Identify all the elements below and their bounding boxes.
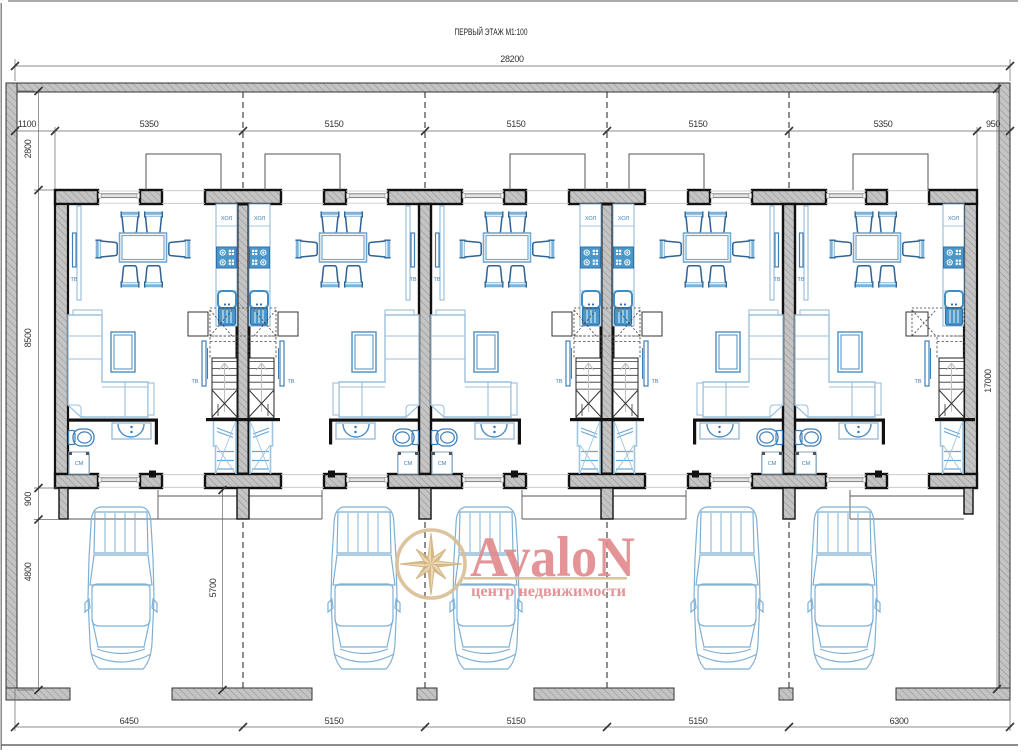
svg-text:ТВ: ТВ — [70, 277, 77, 283]
svg-text:900: 900 — [23, 492, 33, 506]
svg-text:ХОЛ: ХОЛ — [948, 216, 960, 222]
svg-text:ХОЛ: ХОЛ — [221, 216, 233, 222]
svg-text:СМ: СМ — [75, 461, 84, 467]
svg-text:950: 950 — [986, 119, 1000, 129]
svg-text:6300: 6300 — [890, 716, 909, 726]
svg-text:ПЕРВЫЙ ЭТАЖ М1:100: ПЕРВЫЙ ЭТАЖ М1:100 — [455, 26, 528, 38]
svg-text:6450: 6450 — [120, 716, 139, 726]
svg-text:5350: 5350 — [140, 119, 159, 129]
svg-text:8500: 8500 — [23, 328, 33, 347]
svg-text:ХОЛ: ХОЛ — [585, 216, 597, 222]
svg-text:ТВ: ТВ — [773, 277, 780, 283]
svg-text:ТВ: ТВ — [914, 379, 921, 385]
svg-text:5150: 5150 — [325, 716, 344, 726]
svg-text:28200: 28200 — [500, 54, 524, 64]
svg-text:СМ: СМ — [438, 461, 447, 467]
svg-text:5700: 5700 — [208, 578, 218, 597]
svg-text:ТВ: ТВ — [555, 379, 562, 385]
svg-text:5150: 5150 — [507, 119, 526, 129]
svg-text:СМ: СМ — [802, 461, 811, 467]
svg-text:4800: 4800 — [23, 562, 33, 581]
svg-text:1100: 1100 — [18, 119, 36, 129]
svg-text:ТВ: ТВ — [191, 379, 198, 385]
svg-text:5150: 5150 — [507, 716, 526, 726]
svg-text:ТВ: ТВ — [287, 379, 294, 385]
svg-text:2800: 2800 — [23, 139, 33, 158]
svg-text:СМ: СМ — [404, 461, 413, 467]
svg-text:5150: 5150 — [689, 119, 708, 129]
svg-text:5150: 5150 — [689, 716, 708, 726]
svg-text:ХОЛ: ХОЛ — [254, 216, 266, 222]
svg-text:ХОЛ: ХОЛ — [618, 216, 630, 222]
svg-text:СМ: СМ — [768, 461, 777, 467]
svg-text:центр недвижимости: центр недвижимости — [471, 583, 626, 600]
svg-text:ТВ: ТВ — [433, 277, 440, 283]
svg-text:17000: 17000 — [983, 369, 993, 393]
svg-text:ТВ: ТВ — [797, 277, 804, 283]
svg-text:ТВ: ТВ — [409, 277, 416, 283]
svg-text:ТВ: ТВ — [651, 379, 658, 385]
svg-text:5350: 5350 — [874, 119, 893, 129]
svg-text:5150: 5150 — [325, 119, 344, 129]
